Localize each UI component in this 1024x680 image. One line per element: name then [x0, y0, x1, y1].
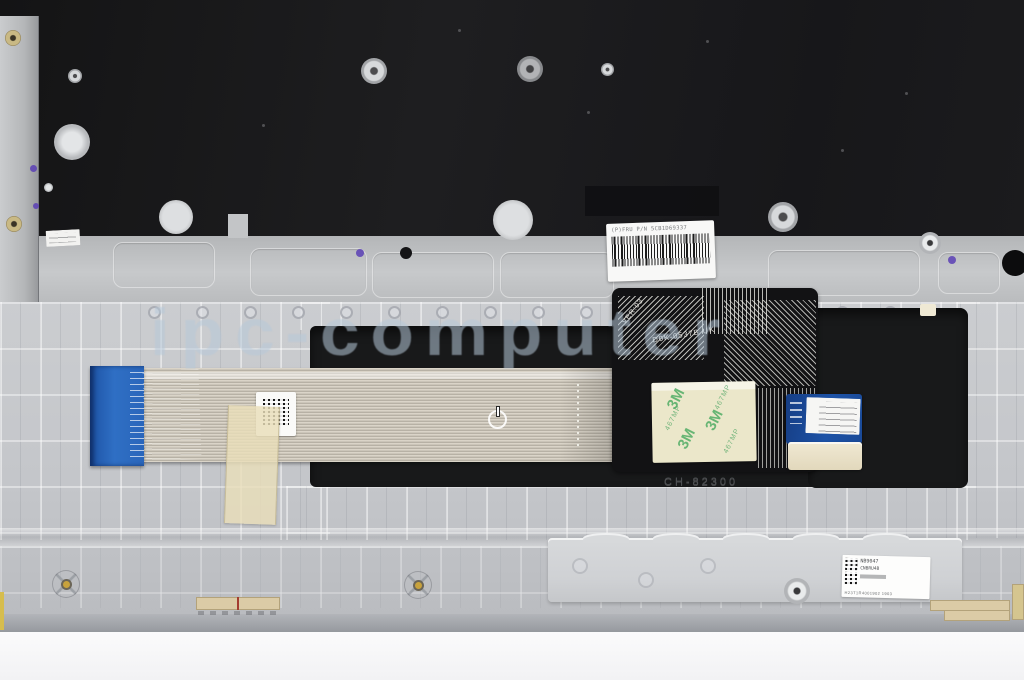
- sticker-brand: 3M: [674, 426, 699, 452]
- screw-hole: [244, 306, 257, 319]
- paint-dot: [33, 203, 39, 209]
- sticker-model: 467MP: [664, 404, 683, 431]
- mini-label: [46, 229, 81, 247]
- sticker-brand: 3M: [702, 407, 727, 433]
- cable-print-marks: [574, 384, 600, 446]
- stamped-emboss: [372, 252, 494, 298]
- connector-contacts: [130, 372, 144, 460]
- qr-code: [845, 572, 857, 584]
- laptop-palmrest-photo: VER:03 D0K-0537B UK 3M 3M 3M 467MP 467MP…: [0, 0, 1024, 680]
- sticker-model: 467MP: [723, 427, 742, 454]
- bracket-dimple: [638, 572, 654, 588]
- pcb-label: [805, 397, 860, 435]
- cable-trace-fan: [142, 369, 201, 461]
- screw-hole: [436, 306, 449, 319]
- photo-background: [0, 632, 1024, 680]
- flex-traces: [724, 300, 816, 386]
- screw-standoff: [361, 58, 387, 84]
- embossed-code: CH-82300: [664, 476, 738, 488]
- bracket-bump: [793, 533, 839, 543]
- connector-pins: [198, 611, 278, 615]
- bracket-bump: [723, 533, 769, 543]
- plate-tab: [159, 200, 193, 234]
- screw-standoff: [54, 124, 90, 160]
- dust-speck: [587, 111, 590, 114]
- screw-hole: [292, 306, 305, 319]
- label-print-bar: [860, 574, 886, 579]
- power-icon: [488, 410, 507, 429]
- tan-connector: [944, 610, 1010, 621]
- bracket-serial: H23T1R4001902 1903: [845, 590, 893, 596]
- bracket-dimple: [700, 558, 716, 574]
- bracket-code: CNBRU4B: [860, 565, 886, 573]
- screw-standoff: [517, 56, 543, 82]
- dust-speck: [262, 124, 265, 127]
- dust-speck: [841, 149, 844, 152]
- paint-dot: [948, 256, 956, 264]
- bracket-bump: [653, 533, 699, 543]
- connector-mark: [237, 597, 239, 610]
- screw-hole: [484, 306, 497, 319]
- screw-standoff: [768, 202, 798, 232]
- fru-part-number: (P)FRU P/N 5CB1D69337: [611, 224, 709, 233]
- sticker-model: 467MP: [714, 383, 733, 410]
- palmrest-front-edge: [0, 614, 1024, 632]
- hinge-strip: [0, 16, 39, 302]
- bracket-bump: [863, 533, 909, 543]
- pcb-silkscreen: [790, 402, 802, 424]
- dust-speck: [458, 29, 461, 32]
- bracket-screw: [784, 578, 810, 604]
- plate-hole: [1002, 250, 1024, 276]
- barcode: [611, 233, 710, 266]
- bracket-dimple: [572, 558, 588, 574]
- screw-hole: [196, 306, 209, 319]
- foam-pad: [788, 442, 862, 470]
- yellow-edge-strip: [0, 592, 4, 630]
- screw-hole: [580, 306, 593, 319]
- screw-hole: [148, 306, 161, 319]
- paint-dot: [356, 249, 364, 257]
- black-tape: [585, 186, 719, 216]
- plate-tab: [493, 200, 533, 240]
- dust-speck: [706, 40, 709, 43]
- screw-standoff: [44, 183, 53, 192]
- bracket-label: NB9047 CNBRU4B H23T1R4001902 1903: [841, 555, 930, 599]
- screw-standoff: [68, 69, 82, 83]
- plate-screw: [919, 232, 941, 254]
- stamped-emboss: [113, 242, 215, 288]
- screw-hole: [532, 306, 545, 319]
- fru-barcode-label: (P)FRU P/N 5CB1D69337: [606, 220, 716, 282]
- adhesive-sticker-3m: 3M 3M 3M 467MP 467MP 467MP: [651, 381, 756, 463]
- bracket-bump: [583, 533, 629, 543]
- foam-nub: [920, 304, 936, 316]
- screw-boss: [404, 571, 432, 599]
- screw-boss: [52, 570, 80, 598]
- stamped-emboss: [250, 248, 367, 296]
- plate-tab: [228, 214, 248, 238]
- qr-code: [845, 558, 857, 570]
- label-qr-column: [845, 558, 858, 594]
- stamped-emboss: [500, 252, 614, 298]
- screw-hole: [340, 306, 353, 319]
- paint-dot: [30, 165, 37, 172]
- dust-speck: [905, 92, 908, 95]
- brass-screw: [6, 216, 22, 232]
- tan-edge-part: [1012, 584, 1024, 620]
- vent-hole: [400, 247, 412, 259]
- screw-standoff: [601, 63, 614, 76]
- brass-screw: [5, 30, 21, 46]
- screw-hole: [388, 306, 401, 319]
- kapton-tape: [224, 405, 280, 525]
